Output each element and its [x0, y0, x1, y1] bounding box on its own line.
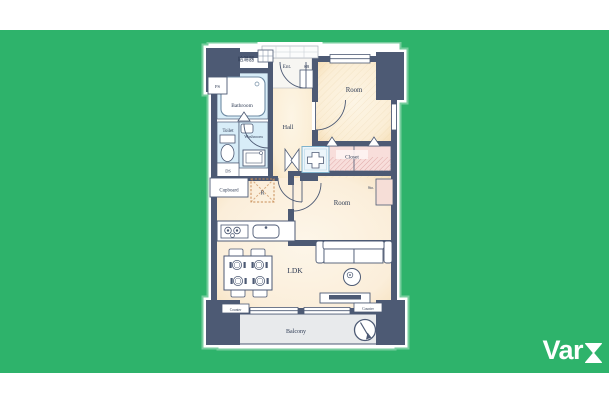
water-heater-label: 給湯器 — [238, 55, 255, 63]
kitchen — [217, 221, 295, 241]
brand-logo: Var — [542, 337, 602, 364]
room-lower-label: Room — [334, 200, 351, 207]
bath-drain-icon — [255, 82, 259, 86]
floor-plan: 給湯器 Ent. SB PS Bathroom Toilet Washroom … — [201, 42, 411, 352]
toilet-bowl-icon — [221, 145, 234, 162]
entrance-label: Ent. — [283, 64, 292, 70]
ldk-label: LDK — [287, 266, 303, 275]
balcony-label: Balcony — [286, 329, 306, 335]
closet-label: Closet — [345, 155, 359, 161]
counter-left-label: Counter — [230, 308, 242, 312]
dining-set — [224, 249, 272, 297]
pipe-space-label: PS — [215, 84, 221, 89]
shoe-box-label: SB — [304, 64, 310, 69]
faucet-icon — [265, 226, 268, 229]
counter-right-label: Counter — [362, 307, 374, 311]
window-right — [392, 104, 397, 130]
hall-label: Hall — [282, 124, 293, 131]
washroom-label: Washroom — [244, 134, 263, 139]
washbasin-icon — [241, 124, 253, 133]
cupboard-label: Cupboard — [219, 189, 239, 194]
shoe-box — [300, 70, 313, 88]
duct-space-label: DS — [225, 169, 231, 174]
brand-logo-text: Var — [542, 337, 583, 364]
hourglass-icon — [585, 343, 602, 363]
refrigerator-label: R — [260, 191, 264, 197]
pillar-top-right — [376, 52, 404, 100]
dining-table — [224, 256, 272, 290]
toilet-tank-icon — [220, 135, 235, 143]
cupboard-box — [210, 178, 248, 197]
floor-plan-svg: 給湯器 Ent. SB PS Bathroom Toilet Washroom … — [201, 42, 411, 352]
bathroom-label: Bathroom — [231, 103, 253, 109]
storage-box — [376, 179, 393, 205]
toilet-label: Toilet — [222, 129, 234, 134]
compass-icon — [355, 320, 376, 341]
storage-label: Sto. — [368, 185, 374, 190]
room-upper-label: Room — [346, 87, 363, 94]
tv-icon — [329, 295, 361, 300]
